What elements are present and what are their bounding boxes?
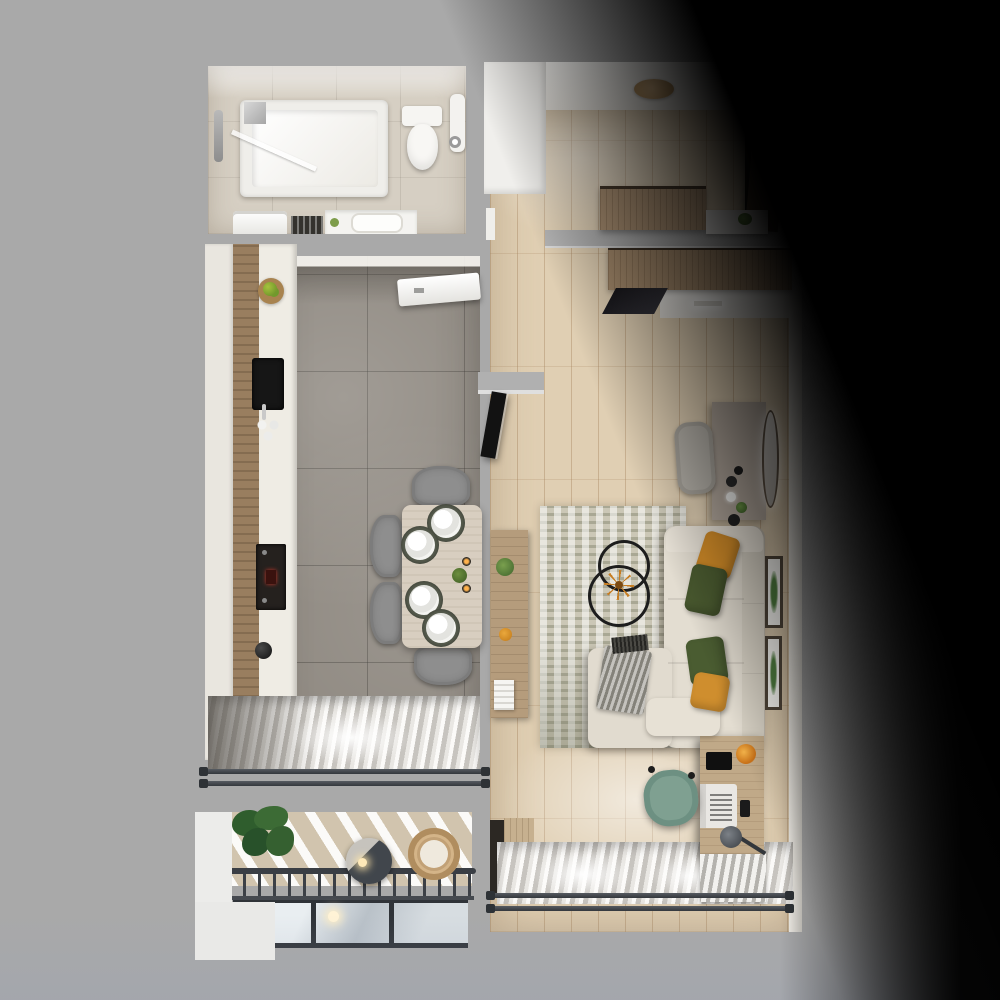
console-books [494,680,514,710]
vanity-item [726,476,737,487]
washing-machine [233,211,287,234]
console-plant [496,558,514,576]
hallway-lower-ceiling [660,290,792,318]
hallway-wardrobe-lower [608,248,792,290]
toilet [407,124,438,170]
balcony-plant [230,806,296,870]
place-setting [422,609,460,647]
kitchen-window-railing [203,769,486,774]
botanical-wall-art [765,556,783,628]
shower-panel [244,102,266,124]
console-decor [499,628,512,641]
dining-chair-west-1 [370,515,403,577]
plant-leaf [266,826,294,856]
office-chair-armrest [648,766,655,773]
desk-decor-orange [736,744,756,764]
kitchen-sink [252,358,284,410]
laptop-lid [700,784,706,828]
air-conditioner-vent [414,288,424,293]
glass-set [254,418,286,444]
oven-control-icon [262,550,267,555]
shower-column [214,110,223,162]
place-setting [401,526,439,564]
office-chair-armrest [688,772,695,779]
oven-control-icon [262,598,267,603]
floor-shadow-tint [0,915,1000,1000]
balcony-pendant-lamp [346,838,392,884]
floor-plan-render [0,0,1000,1000]
hallway-shelf [706,210,768,234]
balcony-wicker-chair [408,828,460,880]
kitchen-counter [259,244,297,760]
balcony-wall [195,902,275,960]
sofa-backrest [742,530,764,744]
bathroom-door [486,208,495,240]
kitchen-window-railing [203,781,486,786]
balcony-wall [195,812,232,912]
hallway-ceiling-lamp [634,79,674,99]
kitchen-window-curtains [208,696,480,772]
laptop [703,784,737,828]
tablet [706,752,732,770]
pillow-orange [689,671,731,713]
candle [462,584,471,593]
desk-lamp [720,826,742,848]
led-ceiling-light [694,301,722,306]
dining-chair-west-2 [370,582,403,644]
fruit-bowl [258,278,284,304]
table-centerpiece-plant [452,568,467,583]
oven-display [266,570,276,584]
toilet-tank [402,106,442,126]
vanity-item [728,514,740,526]
paper-holder [449,136,461,148]
vanity-chair [674,421,717,495]
bathroom-sink [351,213,403,233]
dining-chair-north [412,466,470,506]
vanity-item [726,492,736,502]
partition-wall [478,372,544,394]
living-window-railing [490,893,790,898]
botanical-wall-art [765,636,782,710]
bathroom-plant [330,218,339,227]
hallway-closet [484,62,546,194]
throw-blanket [596,645,652,715]
shelf-plant [738,213,752,225]
kitchen-cabinet-wood [233,244,259,760]
kettle [255,642,272,659]
candle [462,557,471,566]
right-wall [789,106,802,932]
vanity-plant [736,502,747,513]
chandelier-sputnik [604,570,634,600]
dining-chair-south [414,645,472,685]
smartphone [740,800,750,817]
living-window-railing [490,906,790,911]
kitchen-cabinet-face [205,244,233,760]
hallway-wardrobe-upper [600,186,706,230]
vanity-item [734,466,743,475]
oval-wall-mirror [762,410,779,508]
towel-niche [291,216,323,234]
